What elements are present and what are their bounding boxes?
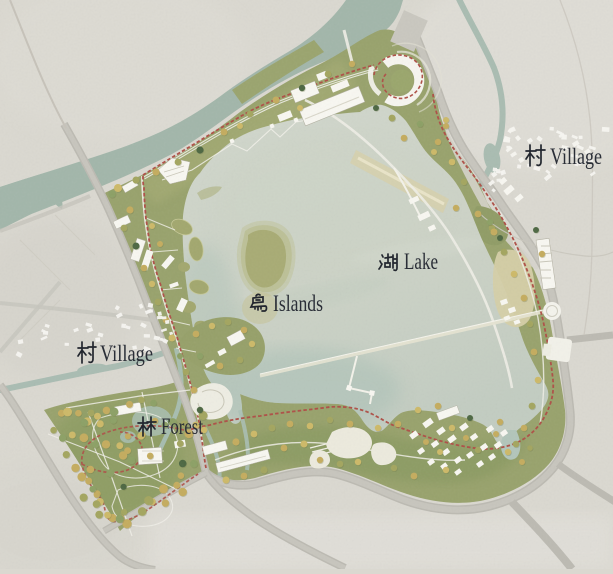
svg-text:Village: Village xyxy=(100,341,153,366)
svg-text:Village: Village xyxy=(550,144,602,169)
svg-text:Lake: Lake xyxy=(404,249,438,274)
svg-text:Forest: Forest xyxy=(161,414,203,439)
svg-text:Islands: Islands xyxy=(273,291,323,316)
